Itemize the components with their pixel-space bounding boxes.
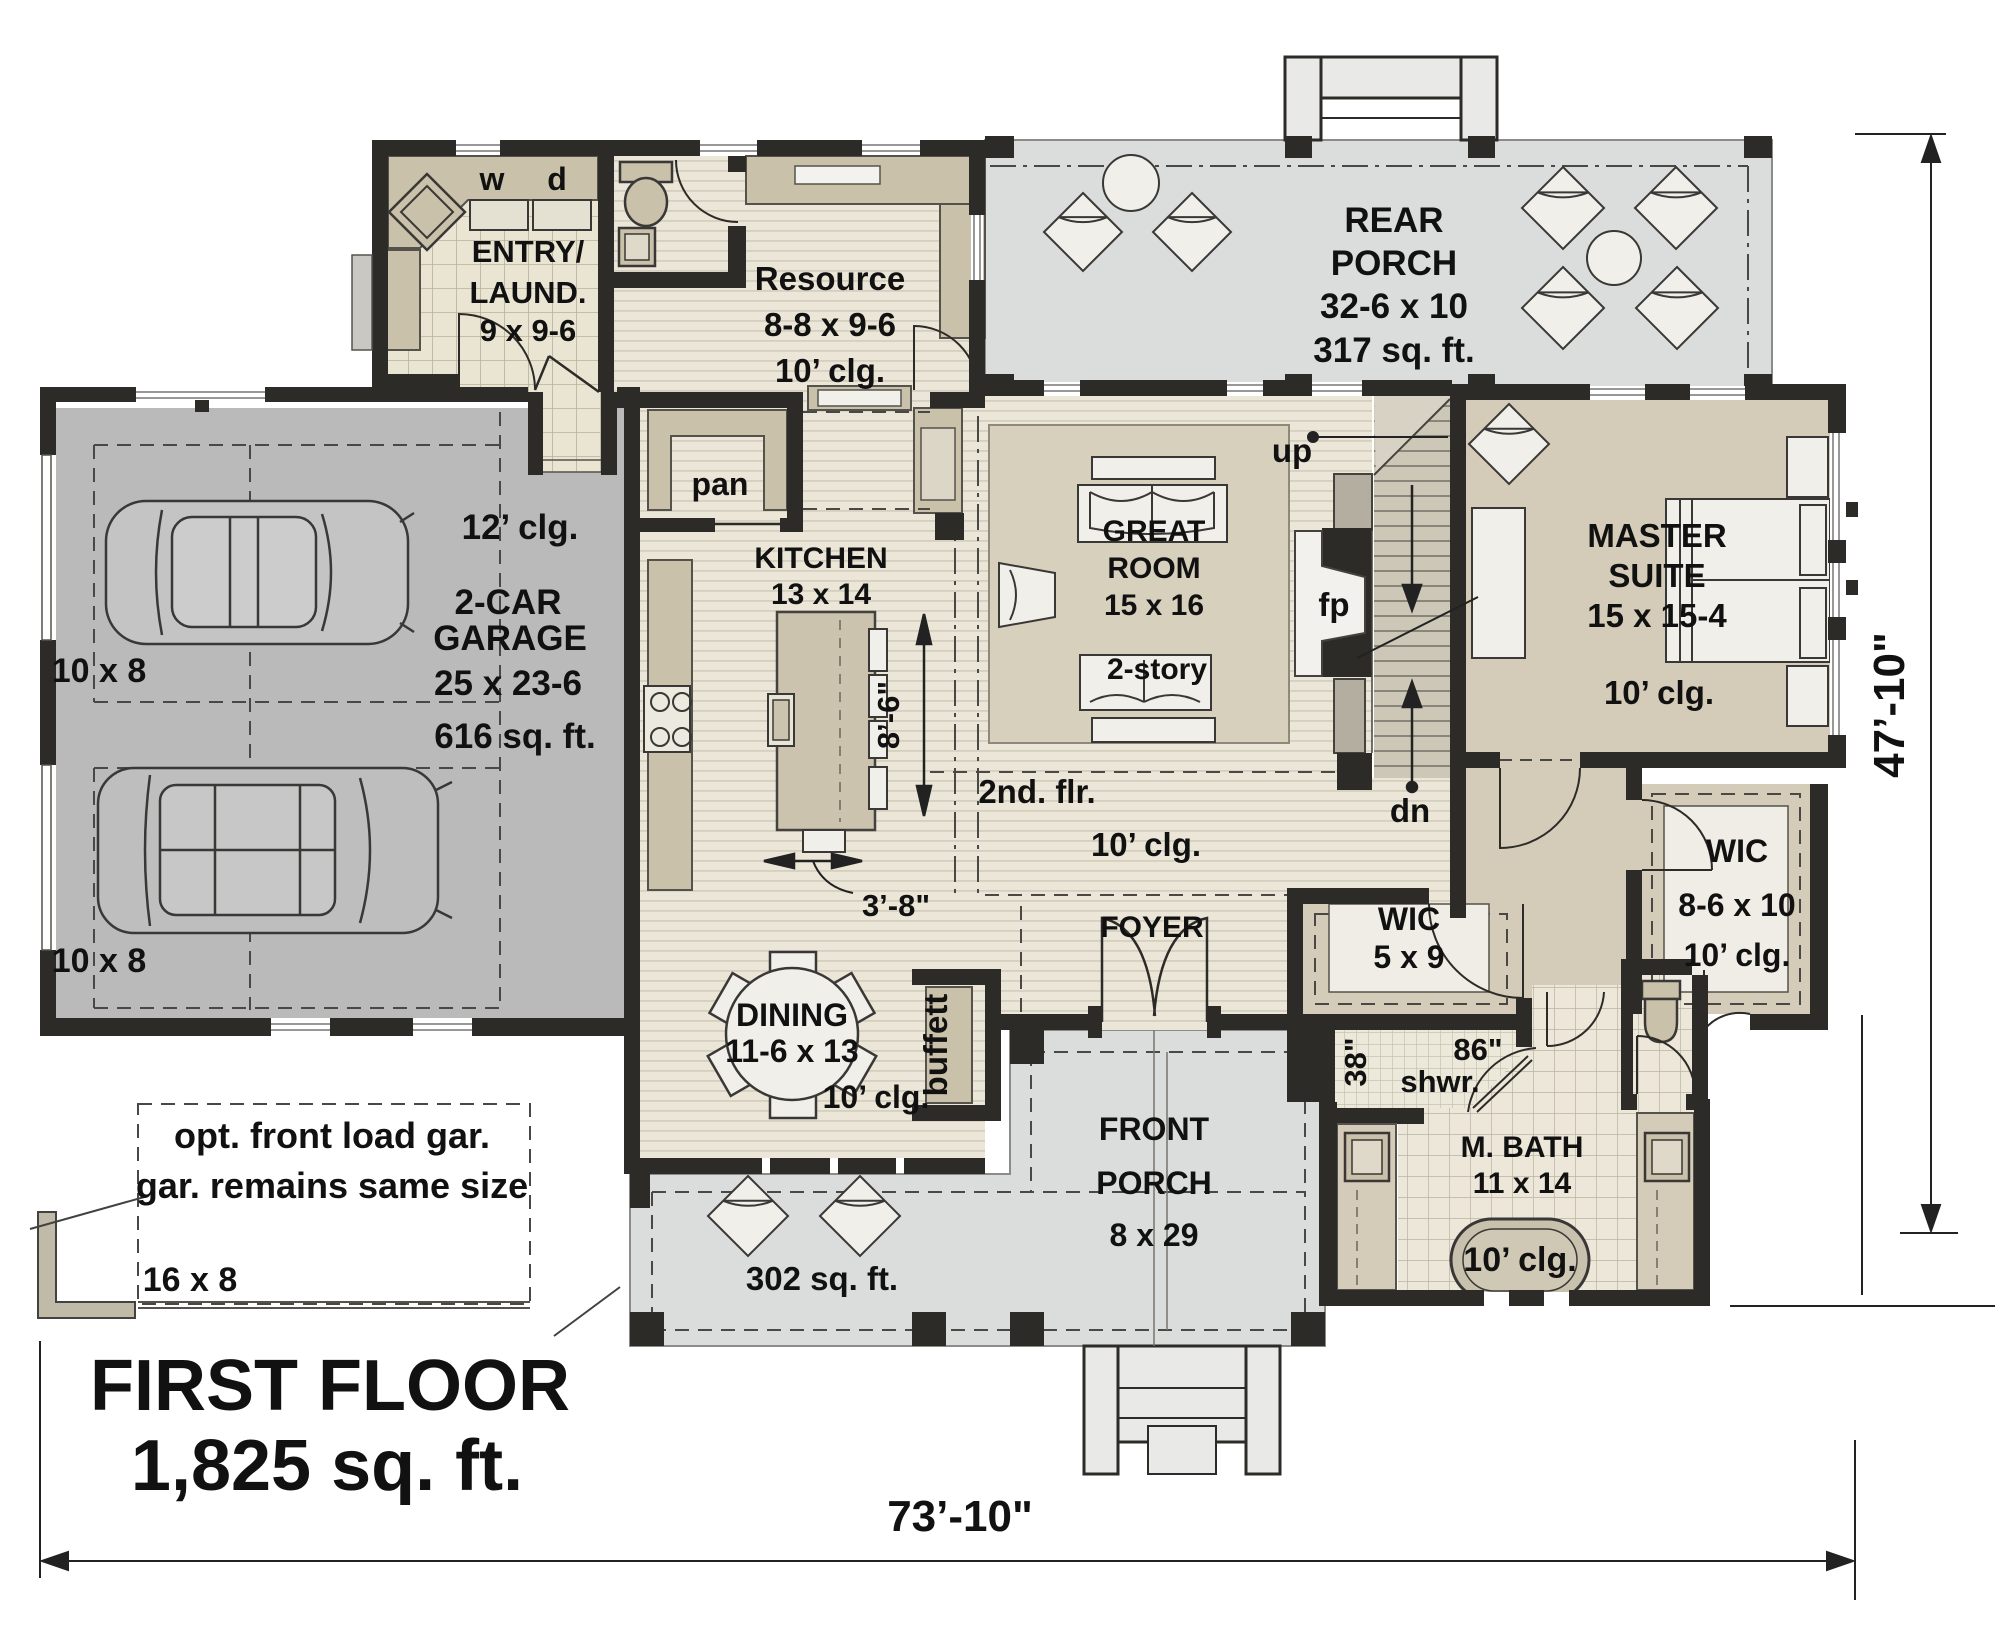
svg-text:SUITE: SUITE [1608,557,1705,594]
svg-text:10’ clg.: 10’ clg. [823,1079,930,1115]
svg-text:PORCH: PORCH [1331,244,1457,283]
svg-text:15 x 16: 15 x 16 [1104,589,1204,622]
svg-text:8 x 29: 8 x 29 [1110,1217,1199,1253]
svg-text:GREAT: GREAT [1103,515,1206,548]
svg-text:8-6 x 10: 8-6 x 10 [1678,887,1795,923]
svg-text:10 x 8: 10 x 8 [52,652,147,690]
svg-text:LAUND.: LAUND. [469,275,586,310]
svg-text:3’-8": 3’-8" [862,888,930,923]
svg-text:GARAGE: GARAGE [433,619,587,658]
svg-text:16 x 8: 16 x 8 [143,1261,238,1299]
svg-text:10’ clg.: 10’ clg. [775,352,885,389]
svg-text:15 x 15-4: 15 x 15-4 [1587,597,1727,634]
svg-text:M. BATH: M. BATH [1461,1131,1584,1164]
svg-text:REAR: REAR [1344,201,1443,240]
svg-text:2-story: 2-story [1107,653,1207,686]
svg-text:32-6 x 10: 32-6 x 10 [1320,287,1468,326]
svg-text:Resource: Resource [755,260,905,297]
svg-text:10’ clg.: 10’ clg. [1604,674,1714,711]
svg-text:PORCH: PORCH [1096,1165,1212,1201]
svg-text:fp: fp [1318,586,1349,623]
svg-text:KITCHEN: KITCHEN [754,542,887,575]
svg-text:FIRST FLOOR: FIRST FLOOR [90,1346,570,1426]
svg-text:11-6 x 13: 11-6 x 13 [725,1033,858,1069]
svg-text:ENTRY/: ENTRY/ [472,234,585,269]
svg-text:DINING: DINING [736,997,848,1033]
svg-text:86": 86" [1453,1032,1502,1067]
svg-text:FRONT: FRONT [1099,1111,1210,1147]
svg-text:2-CAR: 2-CAR [455,583,562,622]
svg-text:d: d [547,161,567,197]
svg-text:2nd. flr.: 2nd. flr. [978,773,1095,810]
svg-text:73’-10": 73’-10" [887,1492,1033,1541]
svg-text:1,825 sq. ft.: 1,825 sq. ft. [131,1426,523,1506]
svg-text:10 x 8: 10 x 8 [52,942,147,980]
svg-text:25 x 23-6: 25 x 23-6 [434,664,582,703]
svg-text:buffett: buffett [917,994,954,1097]
svg-text:MASTER: MASTER [1587,517,1727,554]
svg-text:shwr.: shwr. [1400,1064,1479,1099]
svg-text:13 x 14: 13 x 14 [771,578,871,611]
svg-text:dn: dn [1390,792,1430,829]
svg-text:pan: pan [692,466,749,502]
svg-text:10’ clg.: 10’ clg. [1463,1241,1576,1279]
svg-text:ROOM: ROOM [1107,552,1200,585]
svg-text:616 sq. ft.: 616 sq. ft. [434,717,595,756]
svg-text:WIC: WIC [1706,833,1768,869]
svg-text:8-8 x 9-6: 8-8 x 9-6 [764,306,896,343]
svg-text:9 x 9-6: 9 x 9-6 [480,313,577,348]
svg-text:FOYER: FOYER [1100,911,1204,944]
svg-text:302 sq. ft.: 302 sq. ft. [746,1260,898,1297]
svg-text:317 sq. ft.: 317 sq. ft. [1313,331,1474,370]
svg-text:WIC: WIC [1378,901,1440,937]
svg-text:12’ clg.: 12’ clg. [462,508,579,547]
svg-text:gar. remains same size: gar. remains same size [136,1165,528,1206]
svg-text:10’ clg.: 10’ clg. [1091,826,1201,863]
svg-text:8’-6": 8’-6" [871,681,906,749]
svg-text:opt. front load gar.: opt. front load gar. [174,1115,490,1156]
svg-text:11 x 14: 11 x 14 [1473,1167,1572,1200]
svg-text:5 x 9: 5 x 9 [1373,939,1444,975]
svg-text:38": 38" [1338,1037,1373,1086]
svg-text:47’-10": 47’-10" [1865,632,1914,778]
svg-text:10’ clg.: 10’ clg. [1684,937,1791,973]
svg-text:up: up [1272,432,1312,469]
svg-text:w: w [479,161,505,197]
